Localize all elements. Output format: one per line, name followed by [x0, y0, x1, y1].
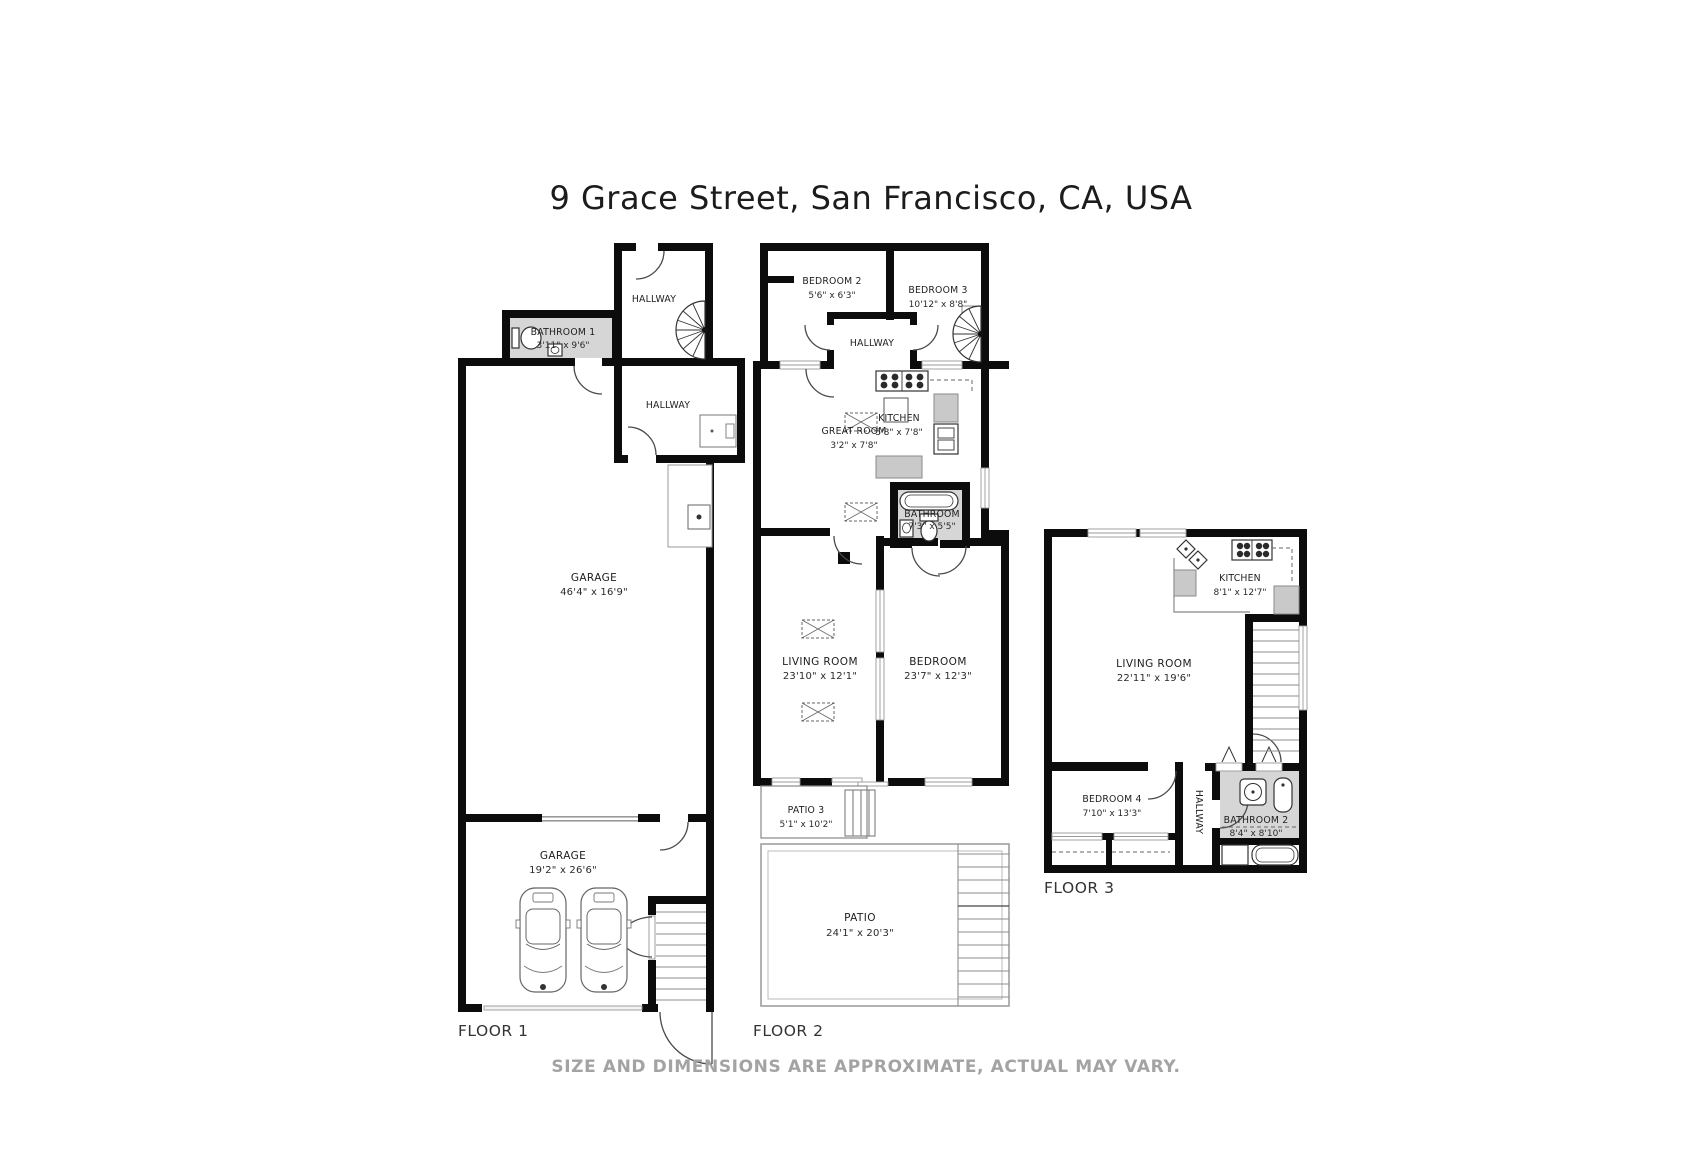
stove-icon [1232, 540, 1272, 560]
room-label-garage-lower: GARAGE [540, 850, 586, 862]
room-dims-bedroom3: 10'12" x 8'8" [909, 300, 968, 310]
room-dims-bedroom2: 5'6" x 6'3" [808, 291, 855, 301]
floor-1-plan: HALLWAY BATHROOM 1 3'11" x 9'6" HALLWAY … [458, 243, 745, 1064]
floor-2-plan: BEDROOM 2 5'6" x 6'3" BEDROOM 3 10'12" x… [753, 243, 1009, 1040]
room-label-bathroom2: BATHROOM 2 [1224, 815, 1289, 826]
sink-icon [934, 424, 958, 454]
room-dims-patio: 24'1" x 20'3" [826, 928, 894, 939]
bathtub-icon [1252, 845, 1298, 865]
toilet-icon [1274, 778, 1292, 812]
dishwasher-icon [1174, 570, 1196, 596]
room-label-bedroom2: BEDROOM 2 [802, 276, 861, 287]
floor-plan-page: 9 Grace Street, San Francisco, CA, USA [0, 0, 1686, 1150]
room-label-bedroom-f2: BEDROOM [909, 656, 967, 668]
room-dims-kitchen-f3: 8'1" x 12'7" [1214, 588, 1267, 598]
floor-3-plan: KITCHEN 8'1" x 12'7" LIVING ROOM 22'11" … [1044, 529, 1307, 897]
staircase-icon [656, 912, 706, 1000]
shelf-icon [700, 415, 736, 447]
room-label-living-room-f2: LIVING ROOM [782, 656, 858, 668]
counter-dashed-line [1272, 548, 1292, 584]
disclaimer-text: SIZE AND DIMENSIONS ARE APPROXIMATE, ACT… [551, 1057, 1180, 1077]
room-label-bathroom-f2: BATHROOM [904, 509, 959, 520]
room-label-living-room-f3: LIVING ROOM [1116, 658, 1192, 670]
counter-dashed-line [930, 380, 972, 392]
room-dims-bathroom2: 8'4" x 8'10" [1230, 829, 1283, 839]
room-label-garage-main: GARAGE [571, 572, 617, 584]
shower-icon [1222, 845, 1248, 865]
room-dims-bathroom-f2: 7'3" x 5'5" [908, 522, 955, 532]
room-dims-garage-main: 46'4" x 16'9" [560, 587, 628, 598]
room-dims-bedroom-f2: 23'7" x 12'3" [904, 671, 972, 682]
patio-outline [761, 844, 1009, 1006]
spiral-staircase-icon [953, 306, 984, 362]
spiral-staircase-icon [676, 301, 708, 359]
room-dims-bedroom4: 7'10" x 13'3" [1083, 809, 1142, 819]
car-icon [577, 888, 631, 992]
refrigerator-icon [1274, 586, 1299, 614]
floor-1-label: FLOOR 1 [458, 1022, 528, 1040]
room-label-hallway-upper: HALLWAY [632, 294, 676, 305]
room-dims-garage-lower: 19'2" x 26'6" [529, 865, 597, 876]
room-label-patio3: PATIO 3 [788, 805, 825, 816]
floor-2-label: FLOOR 2 [753, 1022, 823, 1040]
room-dims-bathroom1: 3'11" x 9'6" [537, 341, 590, 351]
room-label-bathroom1: BATHROOM 1 [531, 327, 596, 338]
room-label-bedroom3: BEDROOM 3 [908, 285, 967, 296]
room-label-patio: PATIO [844, 912, 876, 924]
room-dims-great-room: 3'2" x 7'8" [830, 441, 877, 451]
room-label-hallway-f3: HALLWAY [1193, 790, 1204, 834]
counter-appliance [876, 456, 922, 478]
water-heater-icon [668, 465, 712, 547]
stove-icon [876, 371, 928, 391]
room-label-kitchen-f2: KITCHEN [878, 413, 920, 424]
bathtub-icon [900, 492, 958, 510]
floor-plan: 9 Grace Street, San Francisco, CA, USA [0, 0, 1686, 1150]
room-dims-living-room-f2: 23'10" x 12'1" [783, 671, 857, 682]
patio-staircase-icon [958, 844, 1009, 1006]
room-label-hallway-f2: HALLWAY [850, 338, 894, 349]
dishwasher-icon [934, 394, 958, 422]
room-dims-living-room-f3: 22'11" x 19'6" [1117, 673, 1191, 684]
room-dims-kitchen-f2: 5'8" x 7'8" [875, 428, 922, 438]
sink-icon [1240, 779, 1266, 805]
car-icon [516, 888, 570, 992]
page-title: 9 Grace Street, San Francisco, CA, USA [549, 179, 1192, 217]
room-label-bedroom4: BEDROOM 4 [1082, 794, 1141, 805]
room-label-hallway-lower: HALLWAY [646, 400, 690, 411]
sink-icon [1177, 540, 1207, 569]
floor-3-label: FLOOR 3 [1044, 879, 1114, 897]
room-dims-patio3: 5'1" x 10'2" [780, 820, 833, 830]
staircase-icon [1253, 630, 1299, 751]
room-label-kitchen-f3: KITCHEN [1219, 573, 1261, 584]
